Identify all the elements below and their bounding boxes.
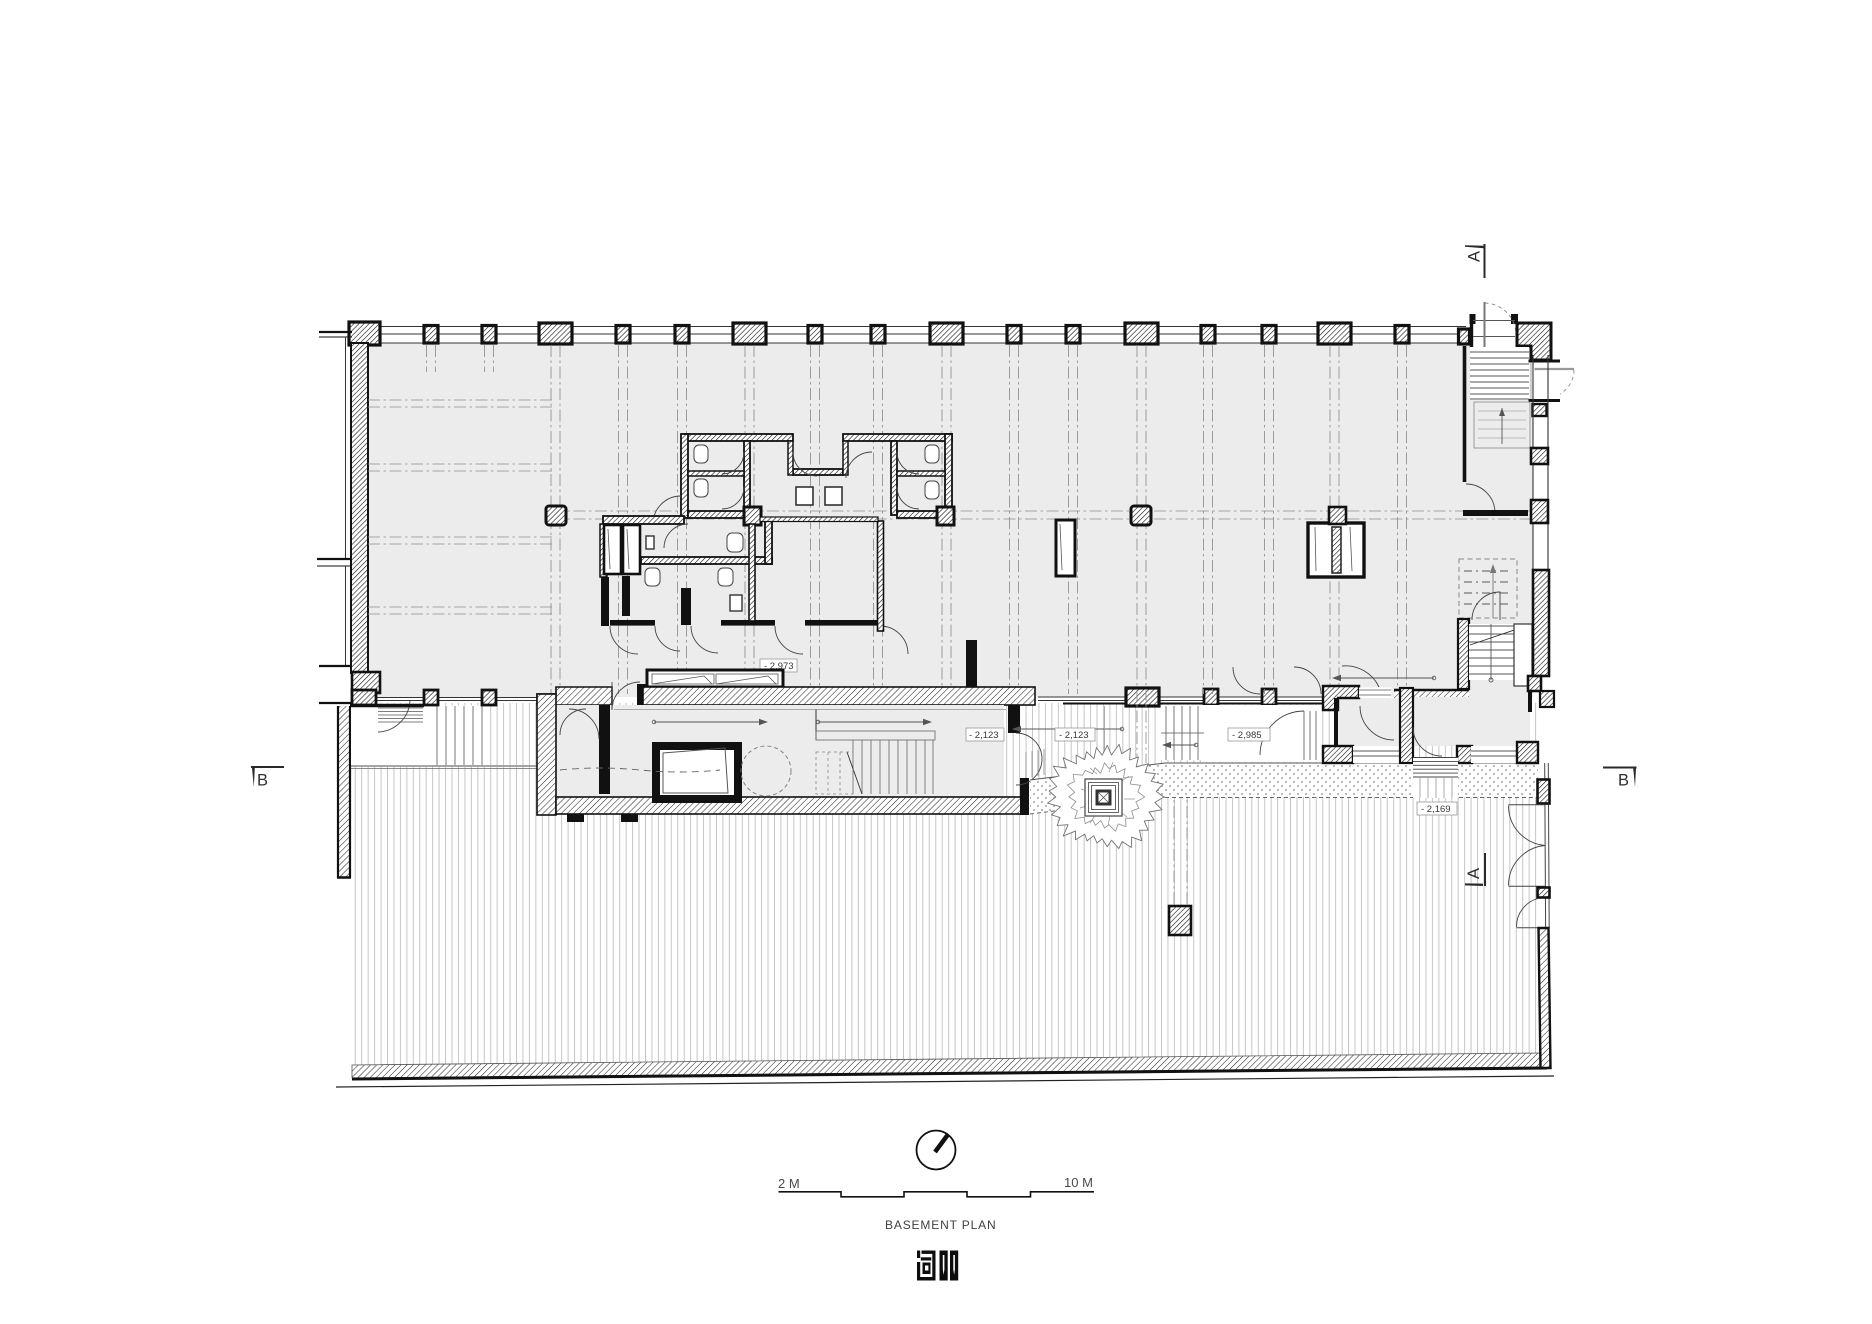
svg-text:- 2,123: - 2,123 bbox=[969, 730, 999, 741]
svg-text:- 2,985: - 2,985 bbox=[1232, 730, 1262, 741]
svg-text:BASEMENT PLAN: BASEMENT PLAN bbox=[885, 1218, 997, 1232]
svg-text:B: B bbox=[1618, 772, 1629, 790]
svg-text:A: A bbox=[1465, 868, 1483, 879]
svg-text:A: A bbox=[1466, 251, 1484, 262]
svg-text:2 M: 2 M bbox=[778, 1176, 800, 1191]
svg-text:- 2,169: - 2,169 bbox=[1421, 804, 1451, 815]
svg-text:- 2,123: - 2,123 bbox=[1059, 730, 1089, 741]
svg-text:10 M: 10 M bbox=[1064, 1175, 1093, 1190]
svg-text:B: B bbox=[257, 772, 268, 790]
